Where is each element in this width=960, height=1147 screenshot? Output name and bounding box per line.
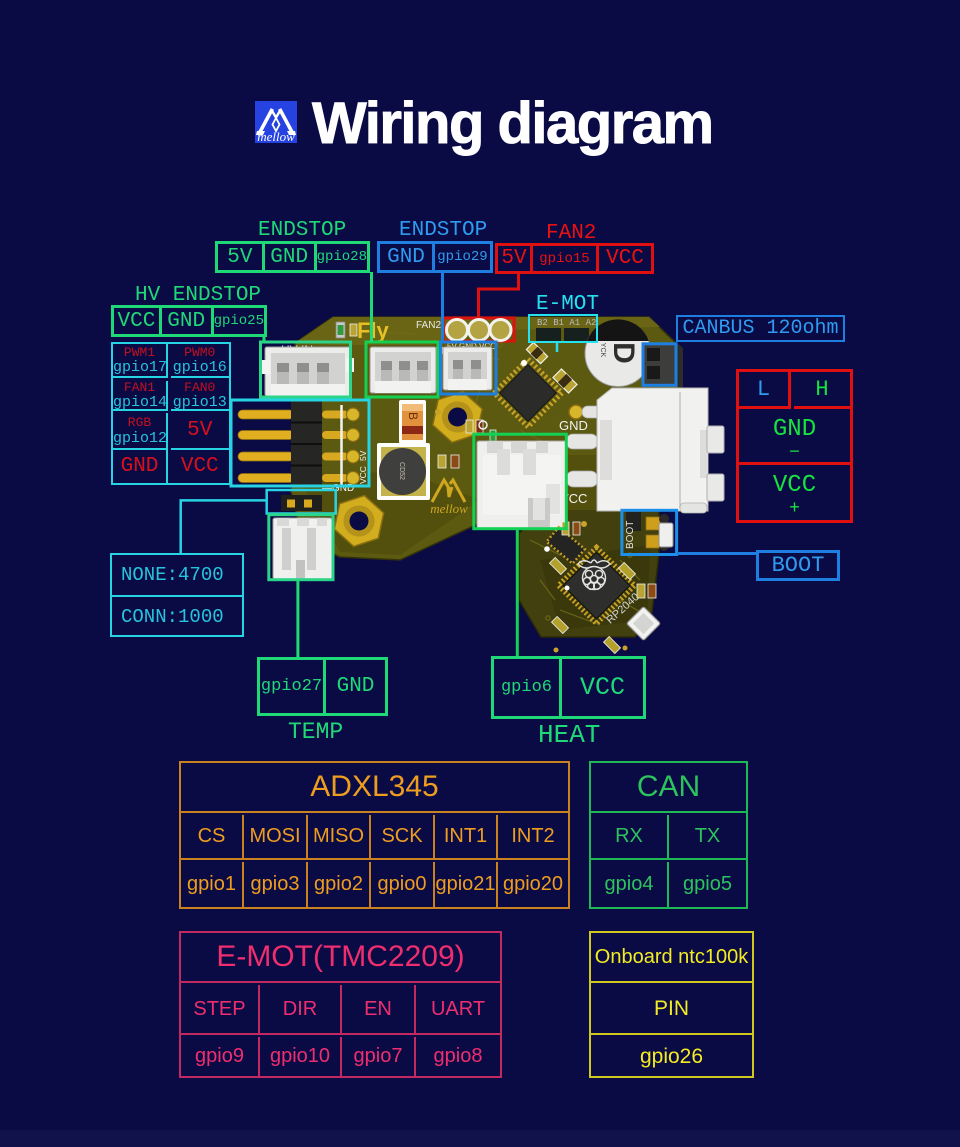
svg-text:B: B <box>406 412 420 420</box>
svg-text:VCC: VCC <box>358 466 368 484</box>
svg-text:mellow: mellow <box>430 501 468 516</box>
svg-text:FAN2: FAN2 <box>416 320 441 331</box>
svg-text:mellow: mellow <box>257 129 295 143</box>
svg-text:YCK: YCK <box>599 343 606 358</box>
svg-text:D: D <box>607 342 640 364</box>
svg-text:CD52: CD52 <box>398 462 405 480</box>
svg-text:BOOT: BOOT <box>625 521 636 549</box>
svg-text:Fly: Fly <box>357 318 390 343</box>
svg-text:5V: 5V <box>358 450 368 461</box>
svg-text:GND: GND <box>559 418 588 433</box>
